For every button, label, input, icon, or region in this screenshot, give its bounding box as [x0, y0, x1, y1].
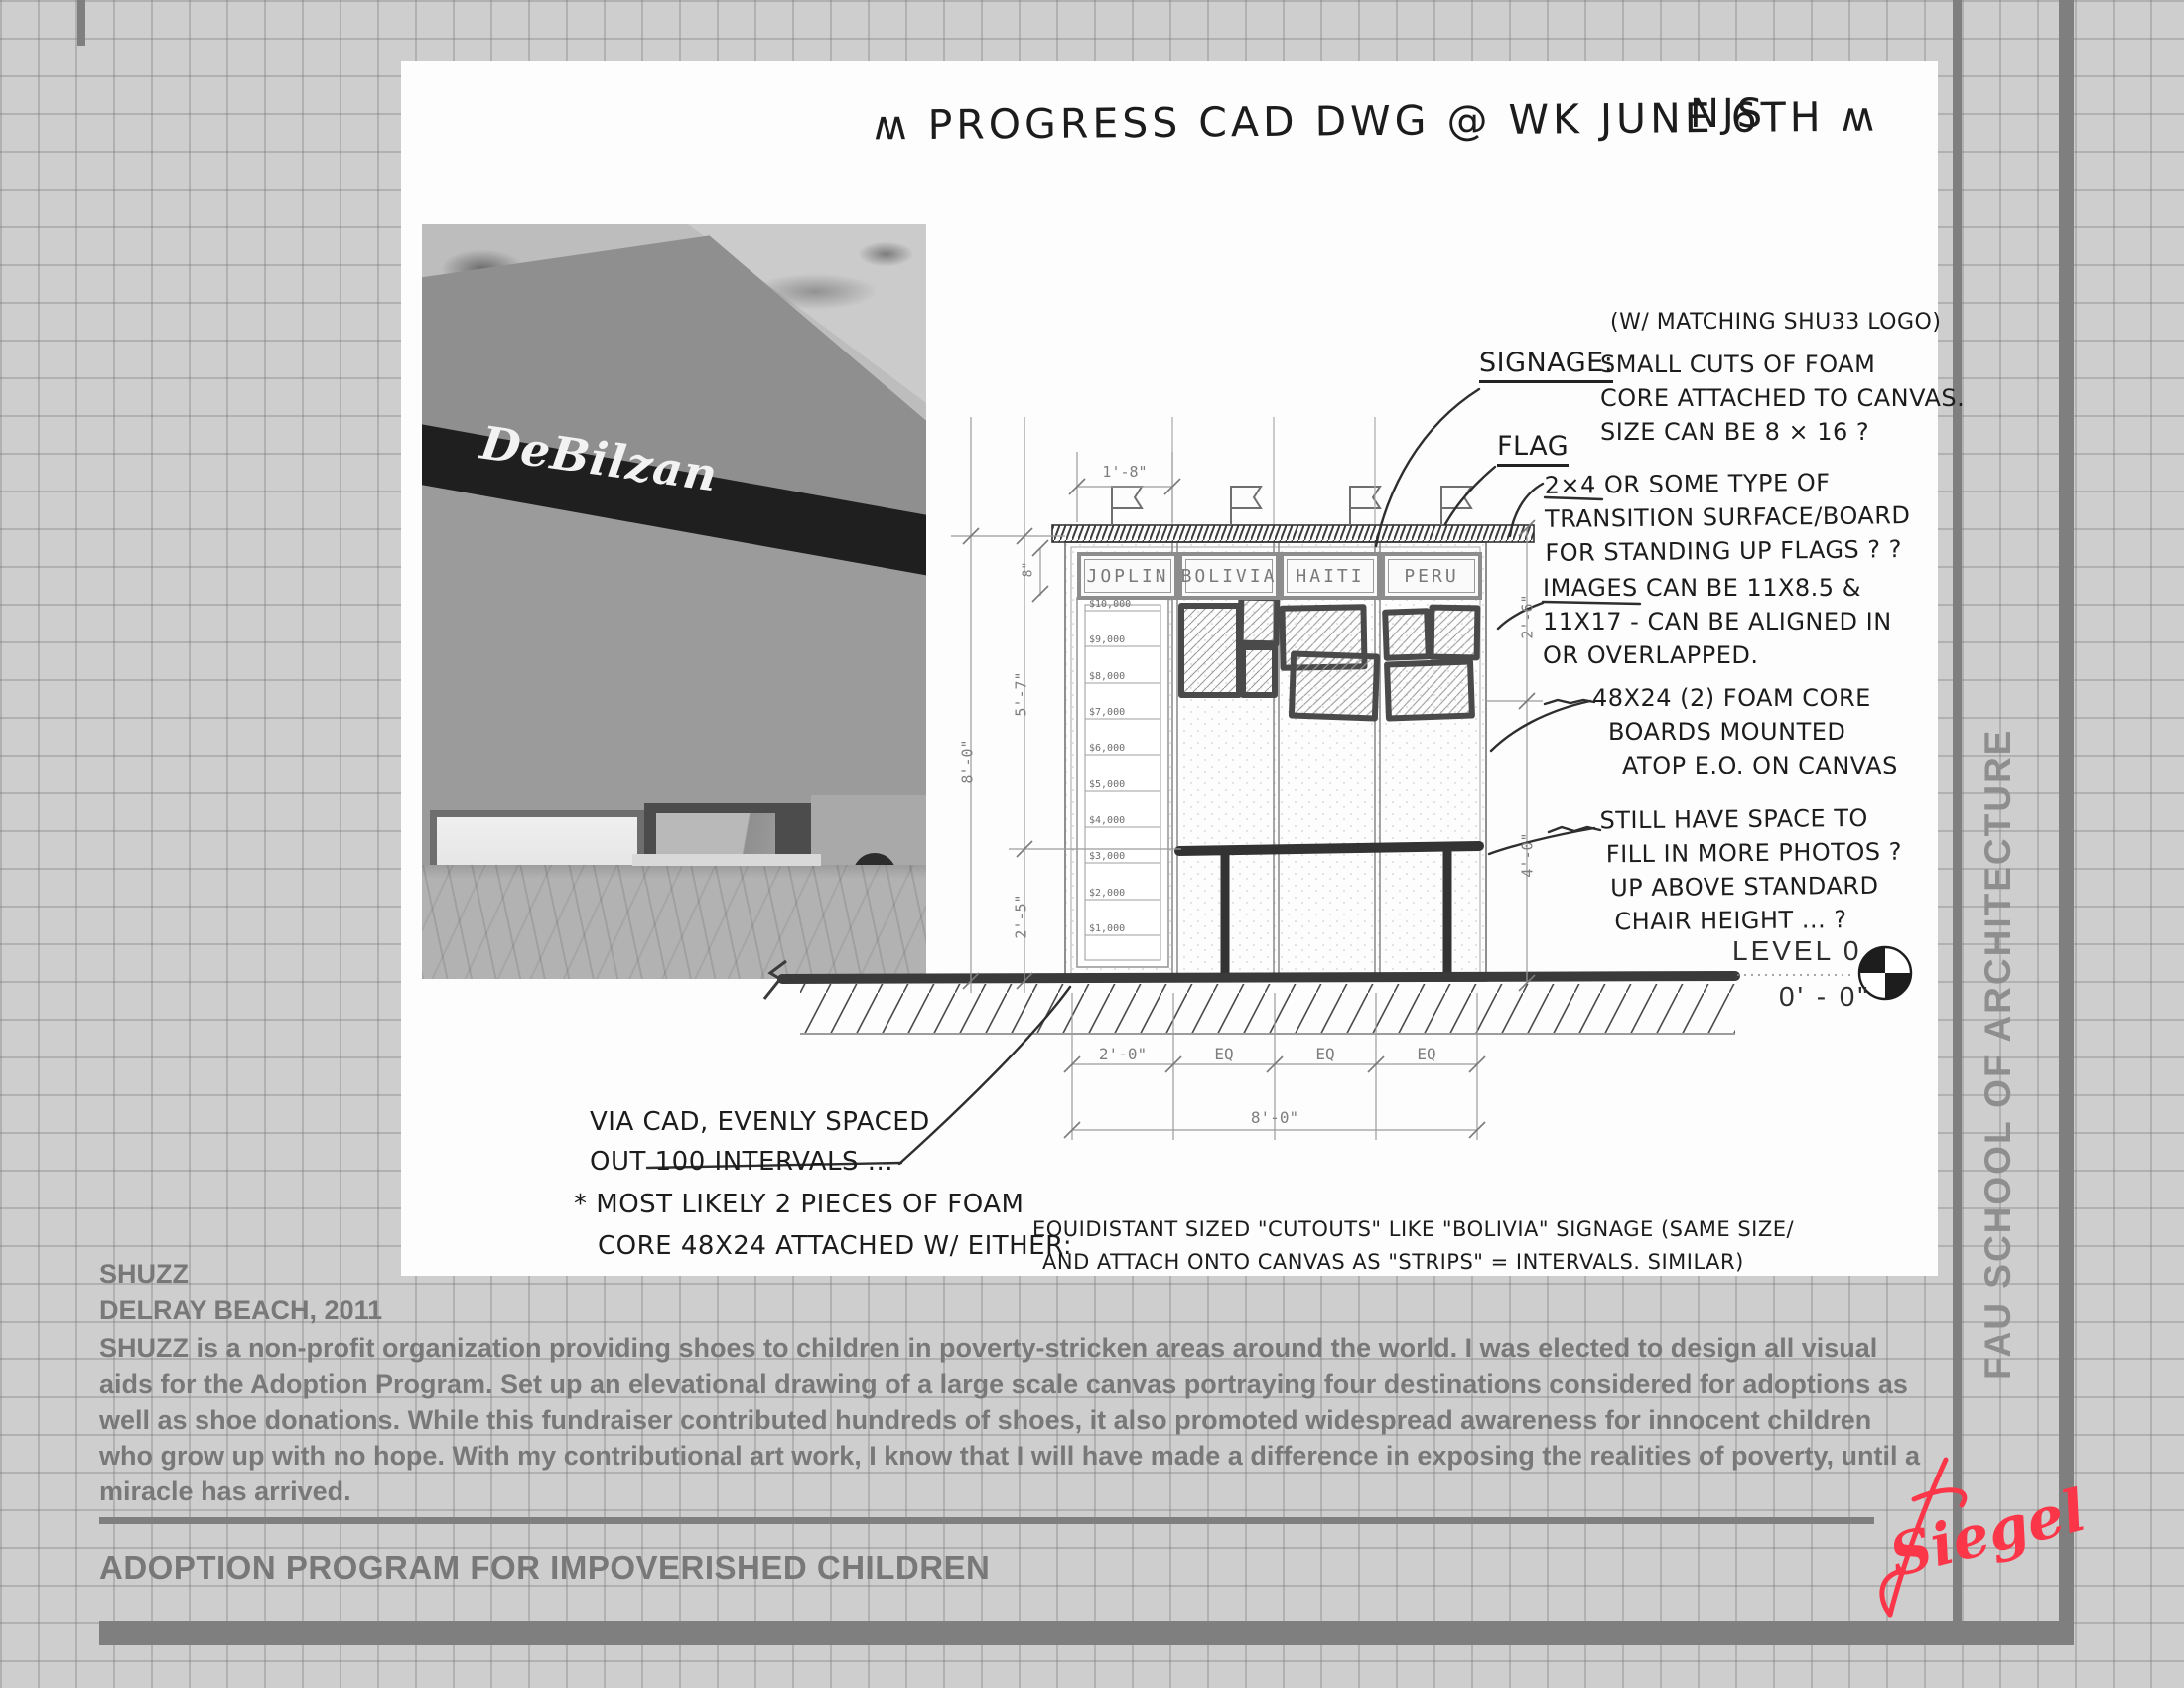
dim-bottom-3: EQ: [1315, 1045, 1334, 1063]
level-label: LEVEL 0: [1732, 935, 1861, 967]
note-most-likely: * MOST LIKELY 2 PIECES OF FOAM CORE 48X2…: [574, 1184, 1072, 1267]
program-title: ADOPTION PROGRAM FOR IMPOVERISHED CHILDR…: [99, 1549, 990, 1587]
note-flag-label: FLAG: [1497, 431, 1569, 467]
sign-label-peru: PERU: [1388, 559, 1475, 593]
signature: Siegel: [1854, 1448, 2083, 1631]
portfolio-board-page: FAU SCHOOL OF ARCHITECTURE DeBilzan: [0, 0, 2184, 1688]
sign-box-joplin: JOPLIN: [1077, 552, 1178, 600]
note-via-cad: VIA CAD, EVENLY SPACED OUT 100 INTERVALS…: [590, 1102, 930, 1182]
hand-initials: NJS: [1690, 91, 1765, 137]
note-matching-logo: (W/ MATCHING SHU33 LOGO): [1610, 310, 1941, 335]
dim-right-upper: 2'-6": [1519, 594, 1537, 638]
dim-bottom-total: 8'-0": [1251, 1108, 1298, 1127]
dim-left-total: 8'-0": [959, 739, 977, 783]
school-vertical-label: FAU SCHOOL OF ARCHITECTURE: [1978, 556, 2019, 1380]
dim-right-lower: 4'-0": [1519, 832, 1537, 877]
thermo-value: $10,000: [1089, 599, 1131, 610]
thermo-value: $9,000: [1089, 634, 1125, 645]
sign-box-peru: PERU: [1381, 552, 1482, 600]
title-divider-rule: [99, 1517, 1874, 1524]
note-equidistant: EQUIDISTANT SIZED "CUTOUTS" LIKE "BOLIVI…: [1032, 1213, 1794, 1279]
thermo-value: $4,000: [1089, 815, 1125, 826]
note-flags: 2×4 OR SOME TYPE OF TRANSITION SURFACE/B…: [1544, 465, 1910, 570]
bottom-bar: [99, 1621, 2074, 1645]
dim-sign-height: 8": [1021, 562, 1035, 578]
thermo-value: $5,000: [1089, 779, 1125, 790]
sign-label-haiti: HAITI: [1287, 559, 1374, 593]
thermo-value: $2,000: [1089, 888, 1125, 899]
note-images: IMAGES CAN BE 11X8.5 & 11X17 - CAN BE AL…: [1543, 571, 1892, 672]
thermo-value: $1,000: [1089, 923, 1125, 934]
note-space: STILL HAVE SPACE TO FILL IN MORE PHOTOS …: [1599, 801, 1902, 939]
project-description: SHUZZ is a non-profit organization provi…: [99, 1331, 1931, 1509]
sign-box-bolivia: BOLIVIA: [1178, 552, 1280, 600]
photo-brick-pavement: [422, 865, 926, 979]
right-thin-vertical-bar: [1953, 0, 1962, 1621]
dim-left-upper: 5'-7": [1013, 671, 1030, 716]
dim-left-lower: 2'-5": [1013, 894, 1030, 938]
dim-bottom-1: 2'-0": [1099, 1045, 1147, 1063]
storefront-photo: DeBilzan: [422, 224, 926, 979]
top-left-tick-bar: [77, 0, 85, 46]
sign-label-joplin: JOPLIN: [1084, 559, 1171, 593]
thermo-value: $6,000: [1089, 743, 1125, 754]
note-signage-body: SMALL CUTS OF FOAM CORE ATTACHED TO CANV…: [1600, 348, 1965, 449]
project-location: DELRAY BEACH, 2011: [99, 1295, 382, 1326]
dim-bottom-4: EQ: [1417, 1045, 1435, 1063]
photo-door-step: [632, 854, 821, 866]
note-foam-core: 48X24 (2) FOAM CORE BOARDS MOUNTED ATOP …: [1592, 681, 1898, 782]
project-name: SHUZZ: [99, 1259, 189, 1290]
dim-bottom-2: EQ: [1214, 1045, 1233, 1063]
thermo-value: $8,000: [1089, 671, 1125, 682]
thermo-value: $7,000: [1089, 707, 1125, 718]
level-elevation: 0' - 0": [1779, 981, 1870, 1013]
right-thick-vertical-bar: [2059, 0, 2074, 1621]
note-signage-label: SIGNAGE:: [1479, 348, 1613, 383]
thermo-value: $3,000: [1089, 851, 1125, 862]
sign-box-haiti: HAITI: [1280, 552, 1381, 600]
dim-top: 1'-8": [1102, 463, 1147, 481]
sign-label-bolivia: BOLIVIA: [1185, 559, 1273, 593]
